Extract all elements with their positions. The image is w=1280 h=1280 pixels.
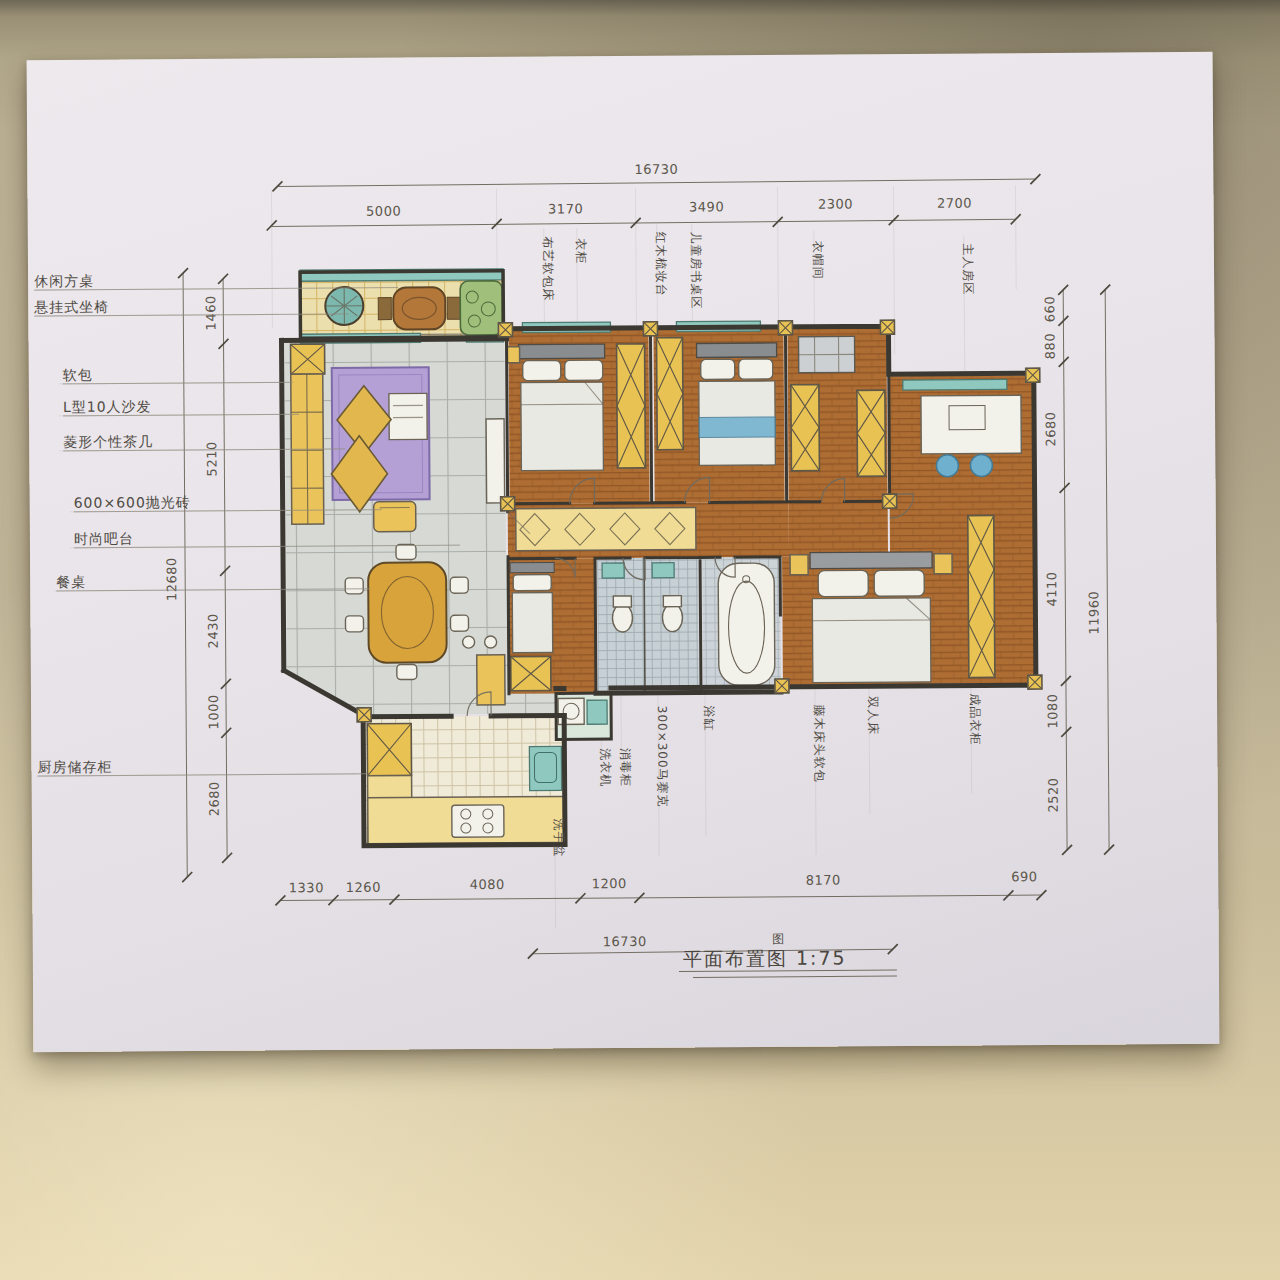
- bed2-blue-throw: [699, 417, 775, 438]
- plan-title: 平面布置图 1:75: [683, 946, 847, 969]
- label-polished-tile: 600×600抛光砖: [74, 494, 191, 511]
- label-bathtub: 浴缸: [702, 705, 716, 731]
- post: [498, 323, 512, 337]
- dim-top-seg: 3490: [689, 199, 724, 214]
- master-pillow: [818, 570, 868, 596]
- dim-top-total: 16730: [634, 162, 678, 177]
- toilet: [662, 604, 682, 632]
- dim-bottom-seg: 690: [1011, 869, 1037, 884]
- master-duvet: [812, 598, 931, 683]
- post: [501, 497, 515, 511]
- label-bar-counter: 时尚吧台: [74, 530, 134, 546]
- master-nightstand: [790, 555, 808, 575]
- top-annotations: 布艺软包床 衣柜 红木梳妆台 儿童房书桌区 衣帽间 主人房区: [541, 229, 976, 311]
- label-cloakroom: 衣帽间: [811, 240, 825, 280]
- post: [357, 708, 371, 722]
- dim-top-seg: 2300: [818, 196, 853, 211]
- label-double-bed: 双人床: [866, 696, 880, 735]
- dim-bottom-seg: 1200: [592, 876, 627, 891]
- dim-top-seg: 2700: [937, 196, 972, 211]
- dim-bottom-seg: 1260: [346, 880, 381, 895]
- dim-left-seg: 2680: [207, 781, 222, 816]
- bed2-pillow: [739, 359, 773, 379]
- dim-top-seg: 5000: [366, 204, 401, 219]
- label-sanitizer-cabinet: 消毒柜: [618, 748, 632, 787]
- dim-right-seg: 2520: [1046, 777, 1061, 812]
- drawing-paper: 16730 5000 3170 3490 2300 2700 12680 146…: [27, 52, 1220, 1052]
- toilet: [612, 604, 632, 632]
- master-desk: [921, 395, 1021, 454]
- dim-bottom-seg: 4080: [470, 877, 505, 892]
- master-nightstand: [934, 554, 952, 574]
- dim-left-total: 12680: [164, 557, 179, 601]
- photo-of-floorplan: { "palette":{ "table_top":"#b0a689","tab…: [0, 0, 1280, 1280]
- balcony-stool-left: [378, 298, 391, 320]
- closet-wardrobe-left: [791, 385, 820, 471]
- bed2-pillow: [701, 359, 735, 379]
- single-bed-pillow: [513, 575, 551, 591]
- bed2-headboard: [697, 343, 777, 358]
- dim-right-seg: 660: [1042, 296, 1057, 322]
- label-soft-padding: 软包: [62, 367, 93, 383]
- bedroom2-wardrobe: [657, 338, 684, 450]
- label-master-area: 主人房区: [961, 244, 975, 296]
- bed1-headboard: [519, 344, 605, 359]
- post: [778, 321, 792, 335]
- label-fabric-bed: 布艺软包床: [541, 236, 555, 301]
- label-kids-desk-area: 儿童房书桌区: [689, 231, 704, 309]
- middle-annotations: 洗衣机 消毒柜 300×300马赛克 浴缸 藤木床头软包 双人床 成品衣柜 洗手…: [551, 693, 983, 857]
- dining-chair: [450, 615, 468, 631]
- washbasin: [602, 563, 624, 578]
- label-wardrobe: 衣柜: [574, 237, 588, 264]
- post: [1028, 675, 1042, 689]
- single-bed-headboard: [510, 562, 554, 572]
- post: [1026, 368, 1040, 382]
- dining-chair: [450, 577, 468, 593]
- label-dresser: 红木梳妆台: [654, 231, 668, 297]
- label-diamond-tea-table: 菱形个性茶几: [63, 433, 153, 450]
- dim-right-seg: 4110: [1044, 571, 1059, 606]
- dining-chair: [397, 664, 417, 679]
- closet-wardrobe-right: [857, 390, 886, 476]
- master-window: [903, 379, 1007, 390]
- label-washing-machine: 洗衣机: [598, 748, 612, 787]
- barrel-table: [393, 287, 445, 329]
- dim-right-total: 11960: [1086, 591, 1101, 635]
- bedroom-1: [506, 322, 645, 471]
- label-hanging-chair: 悬挂式坐椅: [33, 299, 109, 316]
- stove: [452, 805, 504, 837]
- master-bed-headboard: [810, 552, 932, 569]
- dim-top-seg: 3170: [548, 201, 583, 216]
- dim-left-seg: 1000: [206, 694, 221, 729]
- washbasin: [652, 563, 674, 578]
- dining-chair: [396, 544, 416, 559]
- post: [880, 320, 894, 334]
- bed1-nightstand: [507, 347, 520, 363]
- dining-chair: [345, 616, 363, 632]
- toilet-tank: [663, 596, 681, 607]
- dim-bottom-seg: 1330: [289, 880, 324, 895]
- armchair: [374, 501, 416, 531]
- label-kitchen-cabinet: 厨房储存柜: [37, 759, 112, 776]
- desk-chair-blue: [936, 455, 958, 477]
- dim-right-seg: 880: [1042, 333, 1057, 359]
- bed1-pillow: [523, 360, 561, 380]
- laundry-sink: [587, 700, 607, 724]
- bar-stool: [463, 636, 475, 648]
- dim-right-seg: 2680: [1043, 411, 1058, 446]
- dim-bottom-total: 16730: [603, 934, 647, 949]
- balcony-stool-right: [447, 297, 460, 319]
- bedroom1-desk-wardrobe: [617, 344, 646, 468]
- label-mosaic-tile: 300×300马赛克: [655, 706, 670, 808]
- dim-left-seg: 5210: [204, 441, 219, 476]
- side-table: [389, 393, 427, 439]
- bed1-duvet: [521, 382, 604, 471]
- desk-chair-blue: [970, 454, 992, 476]
- dim-left-seg: 2430: [205, 613, 220, 648]
- dim-right-seg: 1080: [1045, 693, 1060, 728]
- label-dining-table: 餐桌: [56, 574, 86, 590]
- label-rattan-headboard: 藤木床头软包: [812, 705, 827, 783]
- bar-stool: [485, 636, 497, 648]
- corridor: [516, 507, 696, 550]
- label-finished-wardrobe: 成品衣柜: [968, 693, 982, 745]
- study-room: [510, 562, 555, 690]
- dining-chair: [345, 578, 363, 594]
- post: [775, 679, 789, 693]
- floorplan-drawing: 16730 5000 3170 3490 2300 2700 12680 146…: [27, 52, 1220, 1052]
- single-bed-duvet: [512, 592, 552, 652]
- post: [883, 494, 897, 508]
- label-leisure-table: 休闲方桌: [33, 273, 94, 289]
- dim-left-seg: 1460: [203, 295, 218, 330]
- bed1-pillow: [565, 360, 603, 380]
- post: [643, 322, 657, 336]
- hall-cabinet: [486, 419, 505, 503]
- master-pillow: [874, 570, 924, 596]
- label-washbasin: 洗手盆: [552, 818, 566, 857]
- dining-table: [368, 562, 447, 663]
- title-correction-char: 图: [772, 932, 785, 946]
- drawing-title: 图 平面布置图 1:75: [679, 931, 897, 978]
- label-l-sofa: L型10人沙发: [63, 398, 152, 415]
- toilet-tank: [613, 596, 631, 607]
- dim-bottom-seg: 8170: [806, 872, 841, 887]
